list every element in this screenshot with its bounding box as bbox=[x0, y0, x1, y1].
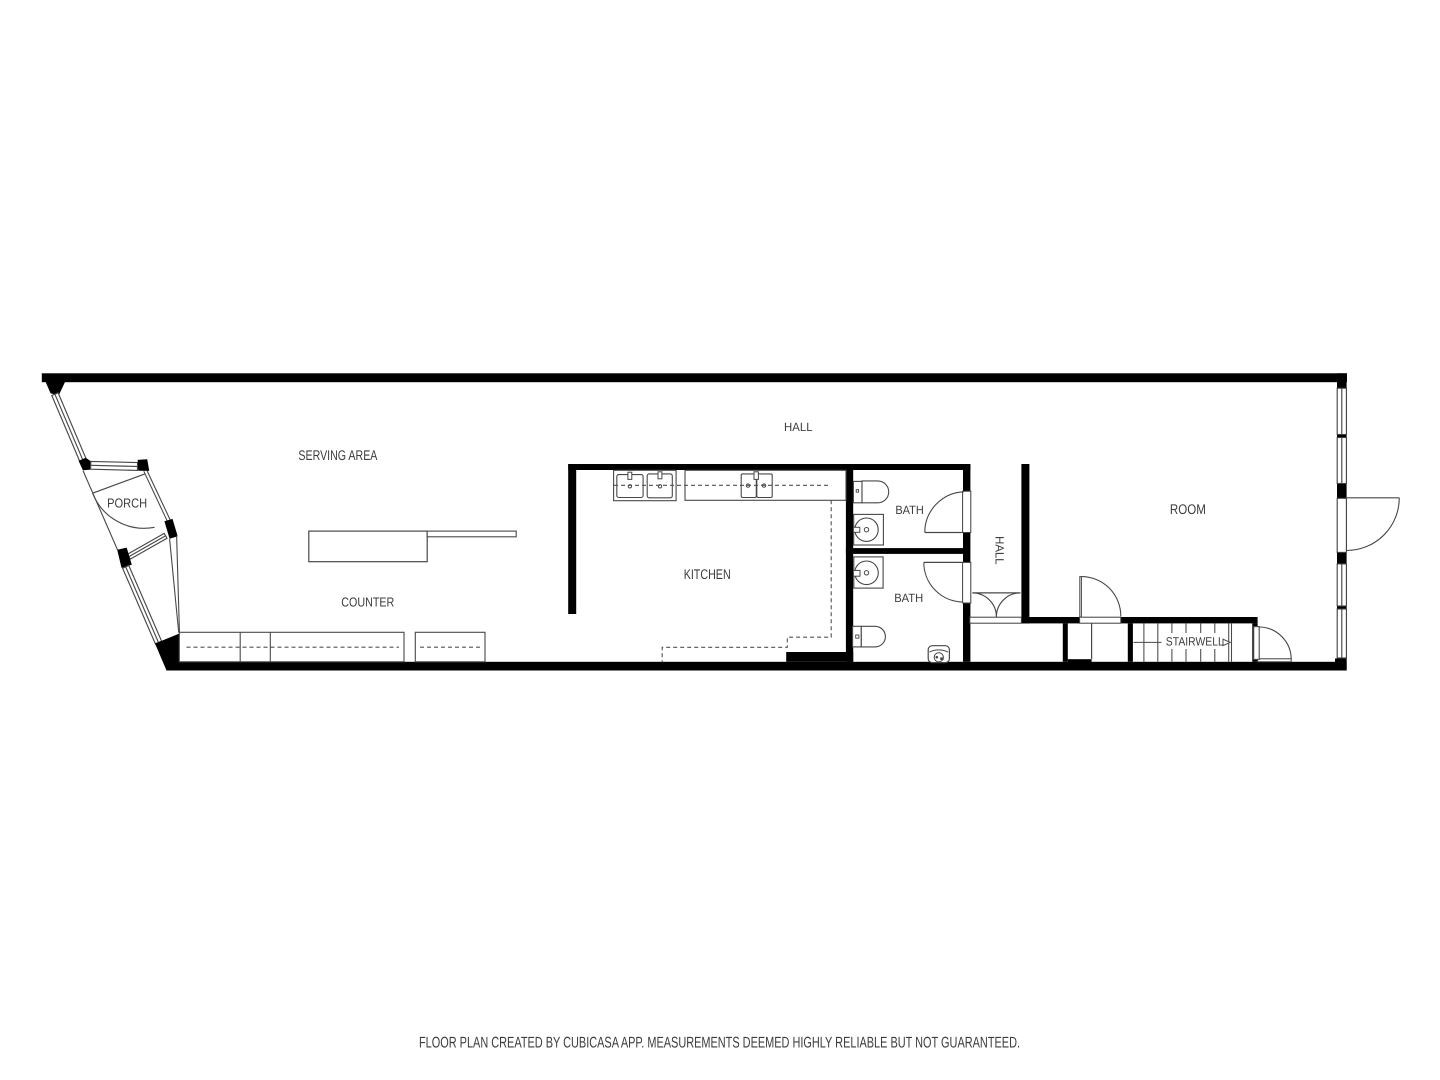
svg-text:COUNTER: COUNTER bbox=[341, 595, 394, 610]
svg-text:PORCH: PORCH bbox=[107, 496, 147, 511]
svg-text:HALL: HALL bbox=[784, 420, 813, 434]
svg-text:KITCHEN: KITCHEN bbox=[684, 566, 731, 582]
svg-text:STAIRWELL: STAIRWELL bbox=[1166, 635, 1224, 649]
svg-text:BATH: BATH bbox=[895, 503, 924, 517]
svg-text:FLOOR PLAN CREATED BY CUBICASA: FLOOR PLAN CREATED BY CUBICASA APP. MEAS… bbox=[419, 1035, 1020, 1052]
svg-text:SERVING AREA: SERVING AREA bbox=[298, 447, 377, 463]
svg-text:HALL: HALL bbox=[993, 536, 1007, 565]
svg-text:BATH: BATH bbox=[894, 591, 923, 605]
svg-text:ROOM: ROOM bbox=[1170, 501, 1206, 517]
